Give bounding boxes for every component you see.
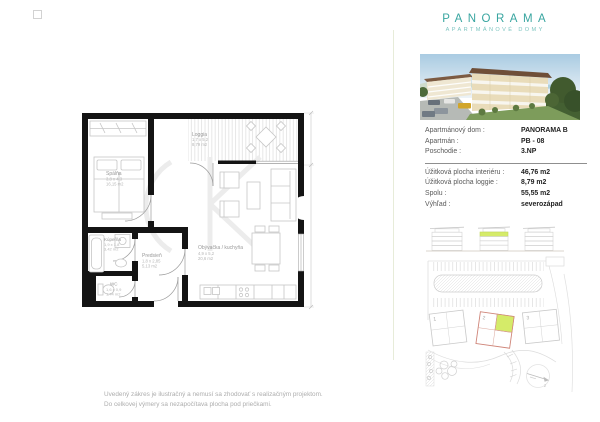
info-row: Úžitková plocha interiéru : 46,76 m2 (425, 169, 587, 180)
info-label: Úžitková plocha interiéru : (425, 169, 504, 176)
info-row: Poschodie : 3.NP (425, 148, 587, 159)
info-value: 8,79 m2 (521, 179, 546, 186)
building-elevations (426, 227, 564, 251)
info-value: 55,55 m2 (521, 190, 550, 197)
highlighted-unit (495, 314, 514, 332)
info-label: Apartmánový dom : (425, 127, 485, 134)
vertical-divider (393, 30, 394, 360)
info-label: Poschodie : (425, 148, 461, 155)
info-row: Apartmánový dom : PANORAMA B (425, 127, 587, 138)
info-row: Apartmán : PB - 08 (425, 138, 587, 149)
info-row: Úžitková plocha loggie : 8,79 m2 (425, 179, 587, 190)
corner-mark (33, 10, 42, 19)
brand-subtitle: APARTMÁNOVÉ DOMY (405, 27, 583, 33)
spec-sheet-page: Spálňa 3,8 x 4,3 16,15 m2 Loggia 1,7 x 5… (0, 0, 600, 422)
info-value: PB - 08 (521, 138, 544, 145)
brand-logo: PANORAMA APARTMÁNOVÉ DOMY (405, 13, 583, 33)
info-divider (425, 163, 587, 164)
living-window (298, 234, 305, 271)
building-footprints: 1 2 3 (429, 309, 559, 348)
svg-text:20,6 m2: 20,6 m2 (198, 256, 214, 261)
info-value: severozápad (521, 201, 563, 208)
svg-text:1,44 m2: 1,44 m2 (106, 292, 121, 297)
site-plan: 1 2 3 (418, 224, 595, 396)
info-value: 46,76 m2 (521, 169, 550, 176)
disclaimer-line2: Do celkovej výmery sa nezapočítava ploch… (104, 400, 323, 410)
floor-plan-drawing: Spálňa 3,8 x 4,3 16,15 m2 Loggia 1,7 x 5… (68, 99, 318, 324)
info-row: Spolu : 55,55 m2 (425, 190, 587, 201)
room-label-wc: WC (110, 282, 118, 287)
watermark-logo (146, 157, 260, 251)
trees (426, 352, 457, 386)
svg-text:5,13 m2: 5,13 m2 (142, 264, 158, 269)
info-value: PANORAMA B (521, 127, 568, 134)
highlighted-floor (480, 232, 508, 236)
loggia-glazing (256, 161, 298, 163)
info-value: 3.NP (521, 148, 536, 155)
disclaimer-line1: Uvedený zákres je ilustračný a nemusí sa… (104, 390, 323, 400)
brand-title: PANORAMA (405, 13, 583, 25)
svg-text:8,79 m2: 8,79 m2 (192, 142, 208, 147)
apartment-info-table: Apartmánový dom : PANORAMA B Apartmán : … (425, 127, 587, 211)
dimension-line (304, 111, 314, 309)
svg-text:3,42 m2: 3,42 m2 (104, 247, 119, 252)
info-label: Apartmán : (425, 138, 459, 145)
disclaimer: Uvedený zákres je ilustračný a nemusí sa… (104, 390, 323, 410)
building-2-highlighted: 2 (476, 312, 514, 348)
svg-text:16,15 m2: 16,15 m2 (106, 182, 124, 187)
building-render (420, 54, 580, 120)
compass-icon: z (527, 365, 550, 389)
info-label: Výhľad : (425, 201, 450, 208)
info-row: Výhľad : severozápad (425, 201, 587, 212)
info-label: Spolu : (425, 190, 446, 197)
info-label: Úžitková plocha loggie : (425, 179, 498, 186)
